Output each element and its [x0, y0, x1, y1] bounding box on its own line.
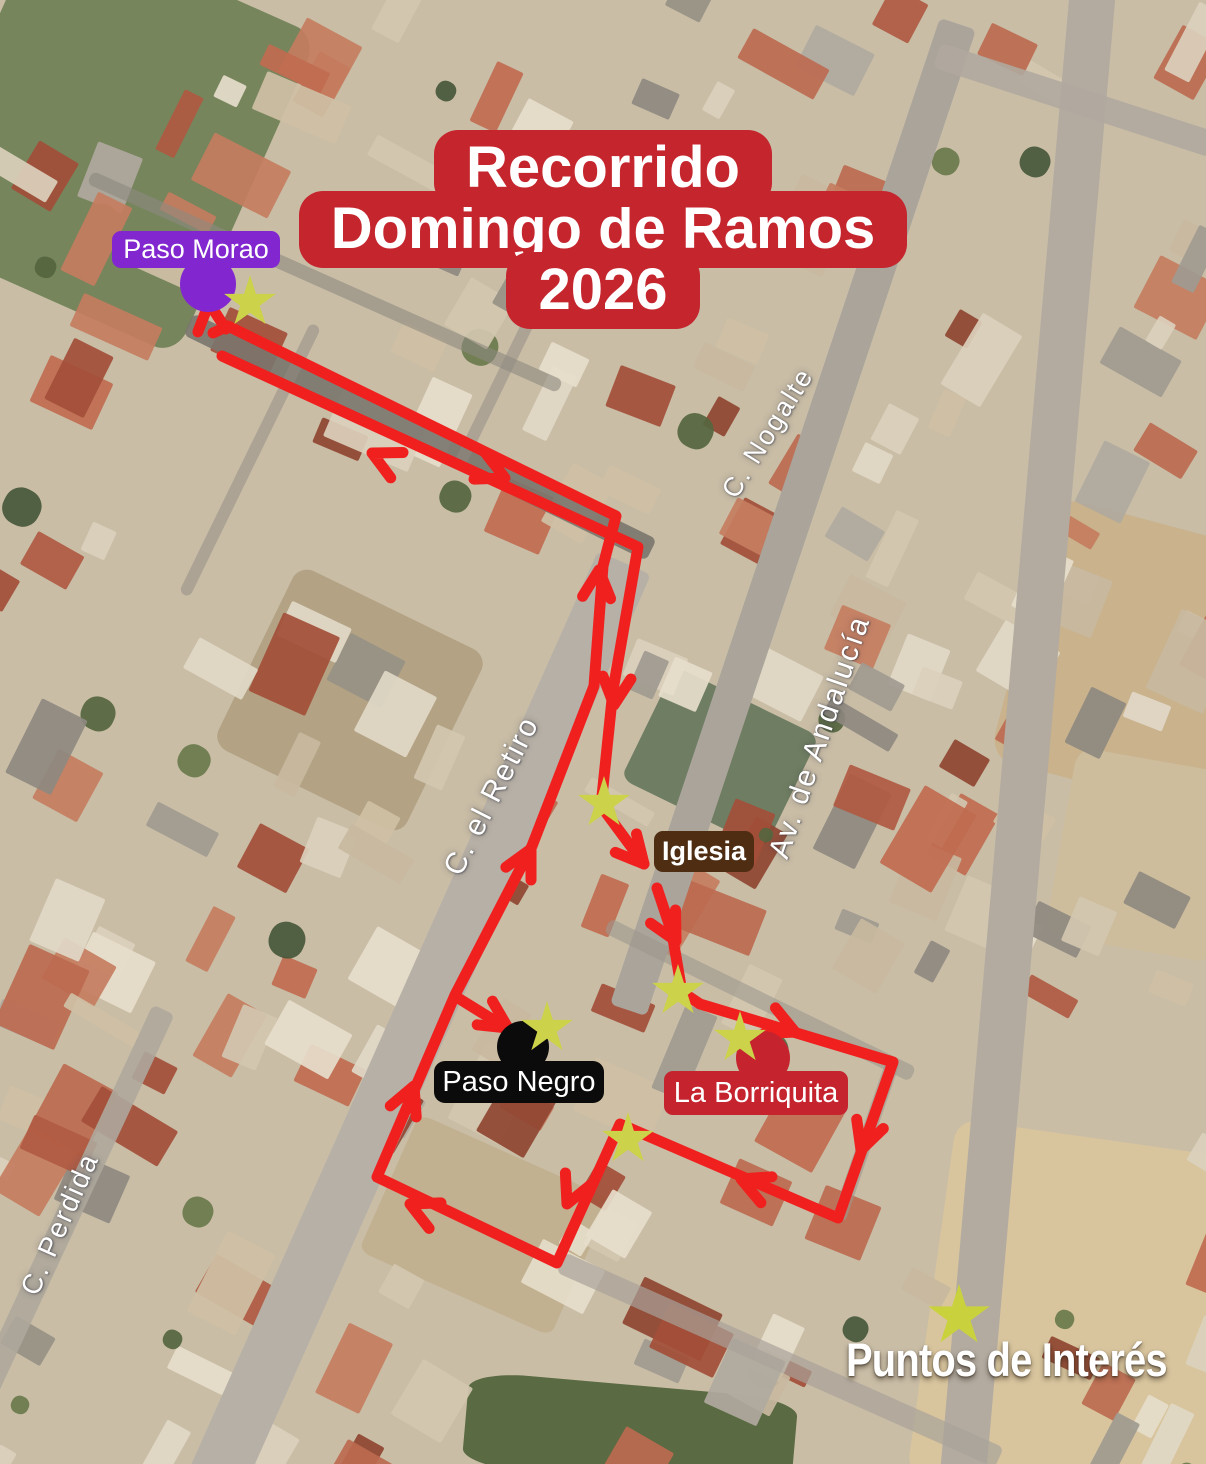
route-arrowhead — [372, 453, 403, 478]
paso-morao-label: Paso Morao — [112, 231, 280, 268]
route-loop-return-path — [213, 326, 893, 1263]
route-arrowhead — [410, 1203, 441, 1229]
la-borriquita-label: La Borriquita — [664, 1071, 848, 1115]
route-overlay — [0, 0, 1206, 1464]
satellite-map: C. Nogalte Av. de Andalucía C. el Retiro… — [0, 0, 1206, 1464]
paso-negro-label: Paso Negro — [434, 1061, 604, 1103]
legend: Puntos de Interés — [846, 1332, 1206, 1387]
iglesia-label: Iglesia — [654, 831, 754, 872]
legend-label: Puntos de Interés — [846, 1332, 1152, 1387]
